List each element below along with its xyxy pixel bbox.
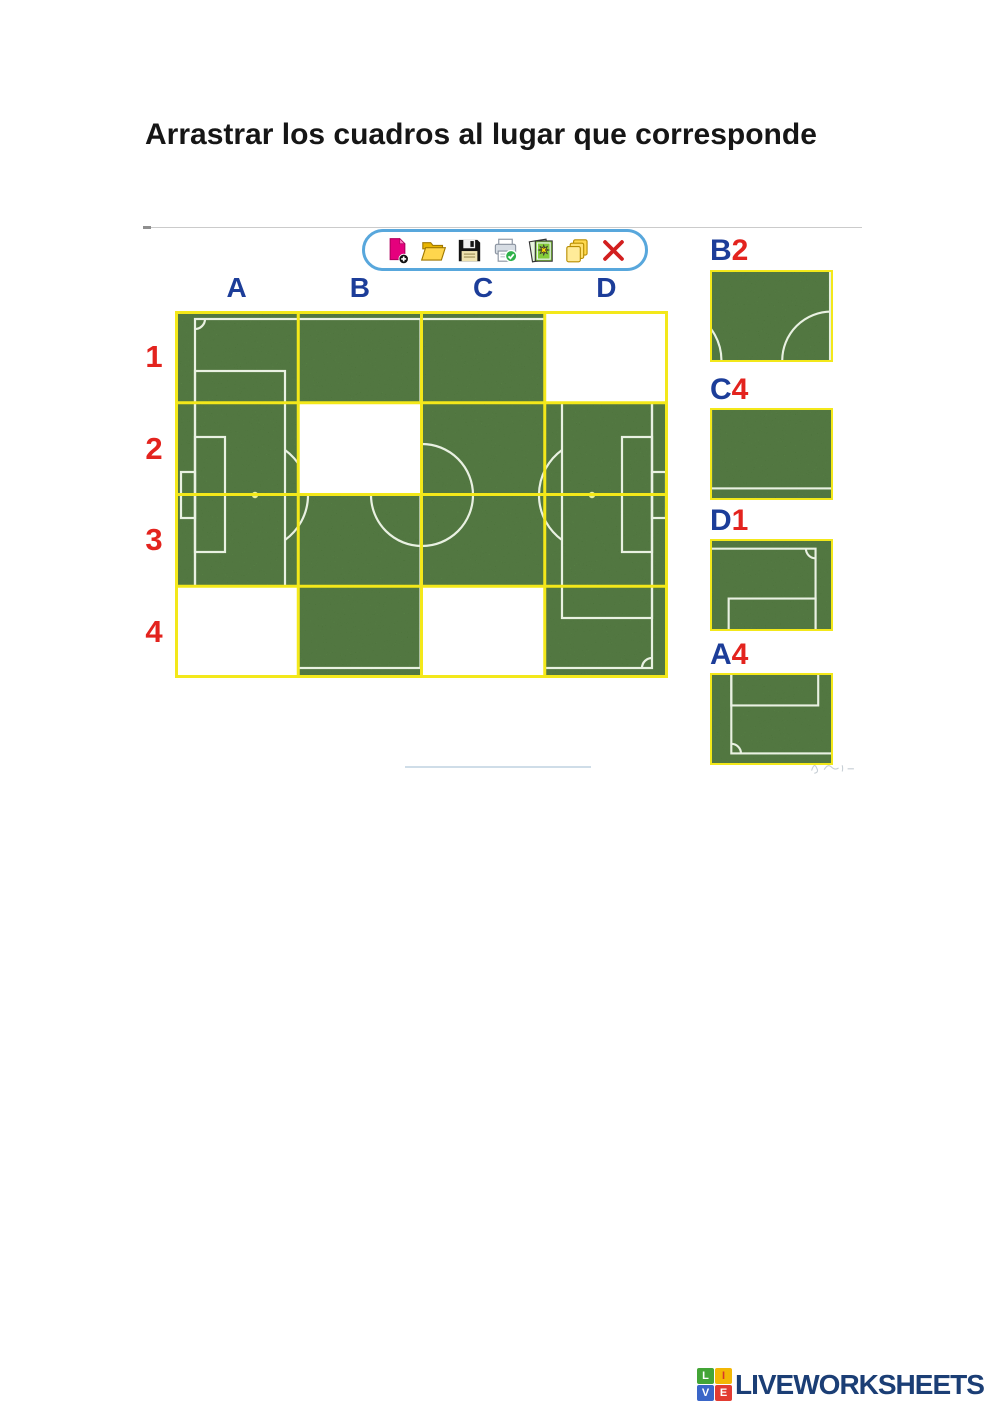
puzzle-board[interactable] [175,311,668,678]
piece-label-d1: D1 [710,504,748,538]
print-icon[interactable] [492,237,519,264]
soccer-field-image [175,311,668,678]
piece-label-b2: B2 [710,234,748,268]
row-label-1: 1 [136,311,172,403]
brand-footer[interactable]: L I V E LIVEWORKSHEETS [697,1368,984,1401]
liveworksheets-logo-icon: L I V E [697,1368,732,1401]
piece-label-a4: A4 [710,638,748,672]
open-folder-icon[interactable] [420,237,447,264]
new-document-icon[interactable] [384,237,411,264]
brand-name: LIVEWORKSHEETS [735,1369,984,1401]
piece-c4[interactable] [710,408,833,500]
piece-a4[interactable] [710,673,833,765]
piece-label-c4: C4 [710,373,748,407]
row-label-2: 2 [136,403,172,495]
signature-watermark [808,757,862,777]
worksheet-toolbar [362,229,648,271]
copy-icon[interactable] [564,237,591,264]
worksheet-page: Arrastrar los cuadros al lugar que corre… [0,0,1000,1413]
drop-cell-b2[interactable] [298,403,421,495]
drop-cell-c4[interactable] [422,586,545,678]
image-gallery-icon[interactable] [528,237,555,264]
row-label-3: 3 [136,495,172,587]
column-header-c: C [422,272,545,304]
page-title: Arrastrar los cuadros al lugar que corre… [145,118,817,152]
column-header-d: D [545,272,668,304]
column-headers: A B C D [175,272,668,304]
column-header-a: A [175,272,298,304]
drop-cell-d1[interactable] [545,311,668,403]
answer-line [405,766,591,768]
piece-b2[interactable] [710,270,833,362]
sheet-divider [145,227,862,228]
piece-d1[interactable] [710,539,833,631]
row-label-4: 4 [136,586,172,678]
sheet-divider-tick [143,226,151,229]
drop-cell-a4[interactable] [175,586,298,678]
delete-icon[interactable] [600,237,627,264]
row-labels: 1 2 3 4 [136,311,172,678]
save-icon[interactable] [456,237,483,264]
column-header-b: B [298,272,421,304]
